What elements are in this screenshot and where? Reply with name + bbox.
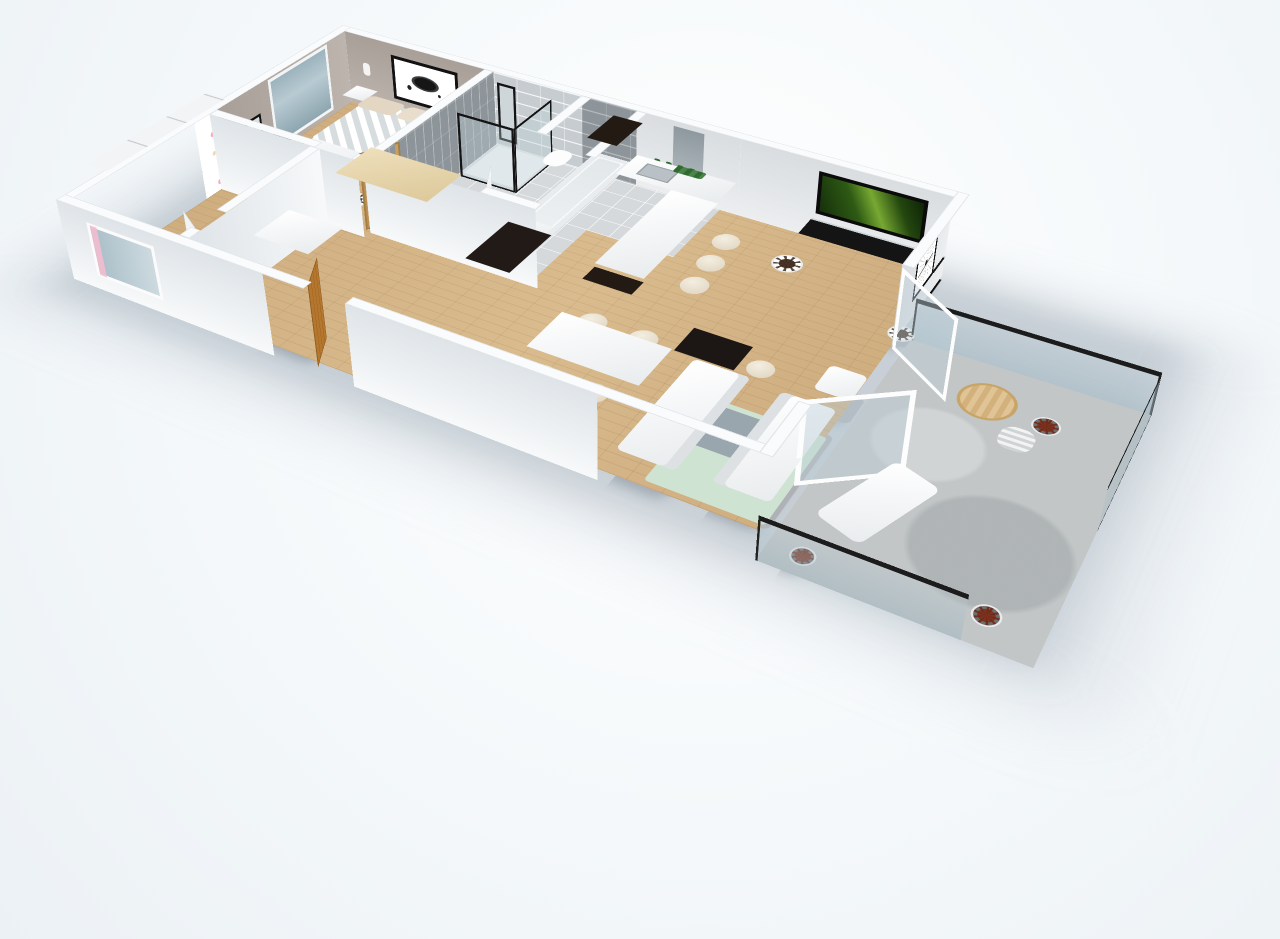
floorplan-3d-stage [0, 0, 1280, 939]
render-viewport [0, 0, 1280, 939]
kitchen-sink [636, 163, 679, 183]
apartment-scene [74, 96, 958, 545]
wall-lamp-left [363, 62, 371, 76]
